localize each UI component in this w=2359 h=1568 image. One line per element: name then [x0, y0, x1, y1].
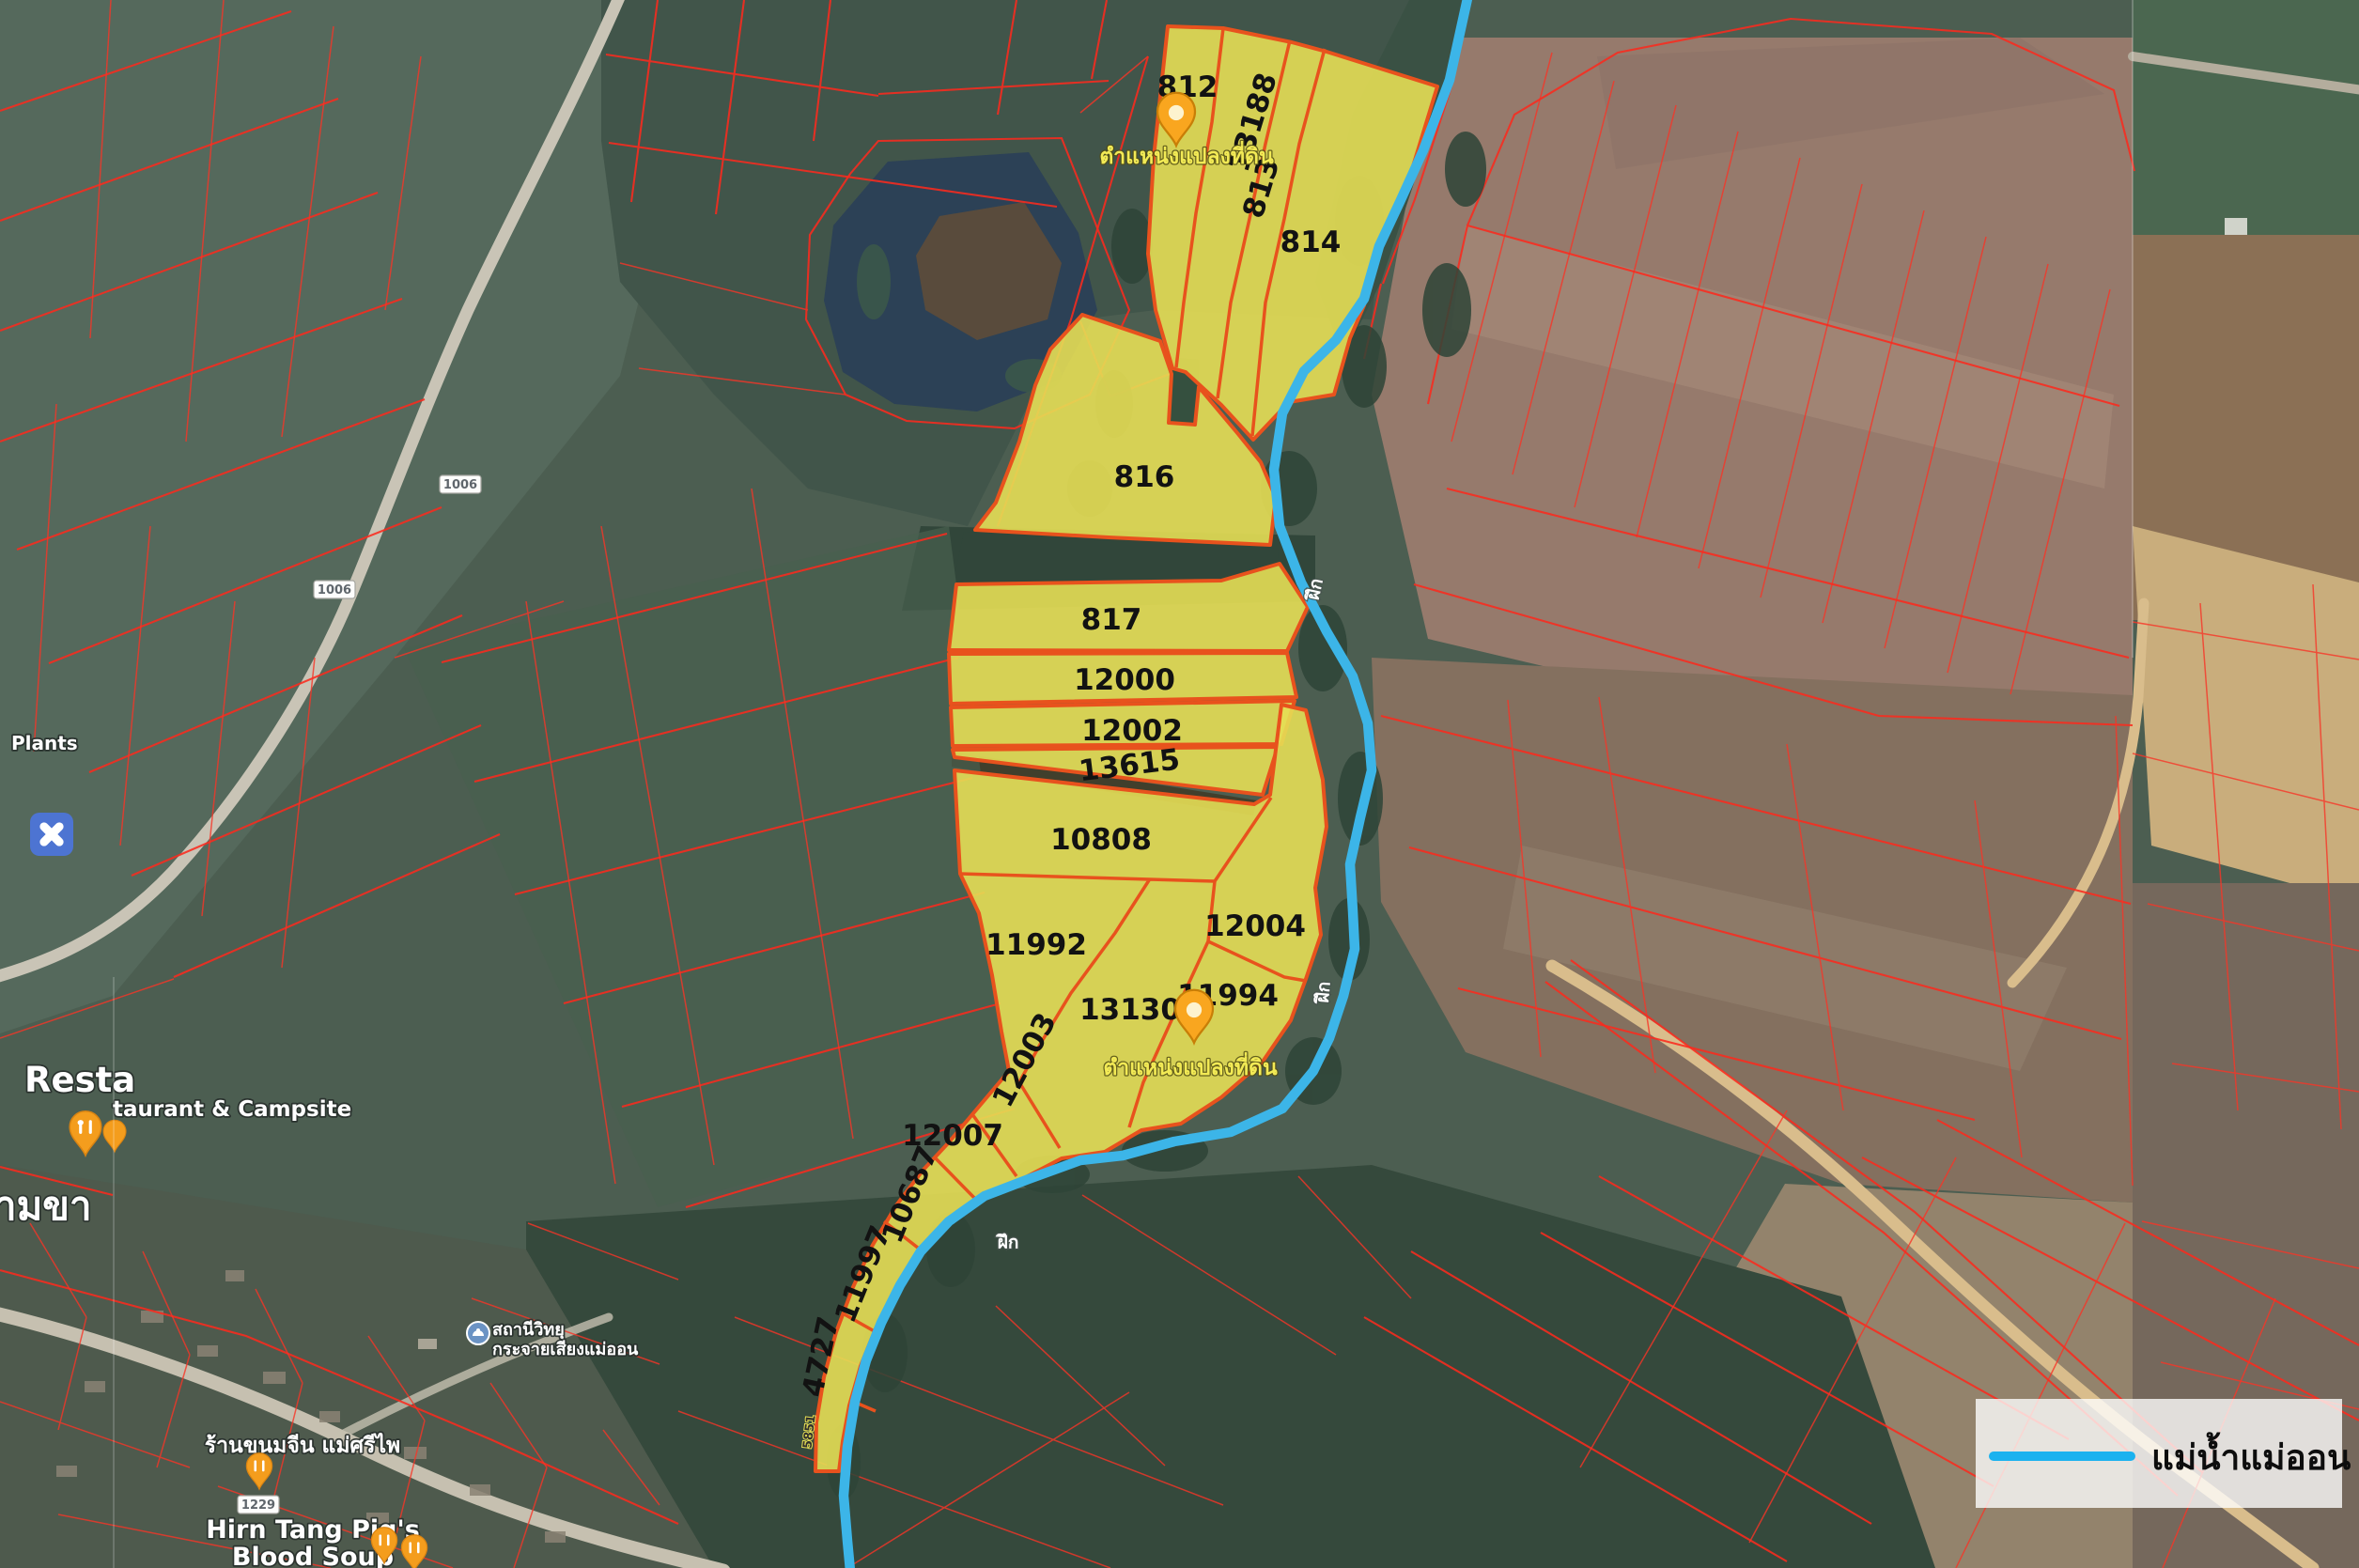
poi-village-samkha-fragment: ามขา — [0, 1183, 92, 1229]
road-badge-1006-b: 1006 — [314, 581, 355, 598]
svg-text:1006: 1006 — [318, 583, 351, 598]
parcel-label-816: 816 — [1114, 460, 1175, 494]
legend-river-name: แม่น้ำแม่ออน — [2151, 1432, 2351, 1478]
river-label-3: ฝึก — [996, 1233, 1019, 1253]
parcel-label-817: 817 — [1081, 603, 1142, 637]
pin-caption-north: ตำแหน่งแปลงที่ดิน — [1099, 140, 1274, 169]
poi-noodle-shop[interactable]: ร้านขนมจีน แม่ศรีไพ — [205, 1432, 400, 1458]
parcel-label-814: 814 — [1280, 225, 1342, 259]
svg-text:1006: 1006 — [443, 478, 477, 492]
poi-radio-line1[interactable]: สถานีวิทยุ — [492, 1320, 565, 1341]
parcel-label-10808: 10808 — [1050, 823, 1152, 857]
poi-plants[interactable]: Plants — [11, 732, 78, 754]
river-label-2: ฝึก — [1312, 981, 1335, 1005]
poi-radio-line2[interactable]: กระจายเสียงแม่ออน — [492, 1340, 639, 1359]
pin-caption-south: ตำแหน่งแปลงที่ดิน — [1103, 1051, 1278, 1080]
legend: แม่น้ำแม่ออน — [1976, 1399, 2351, 1508]
satellite-map-canvas[interactable]: 812 13188 813 814 816 817 12000 12002 13… — [0, 0, 2359, 1568]
parcel-label-12004: 12004 — [1204, 909, 1306, 943]
radio-station-icon[interactable] — [467, 1322, 489, 1344]
parcel-label-13130: 13130 — [1079, 993, 1181, 1027]
poi-restaurant-big-fragment[interactable]: Resta — [24, 1060, 135, 1100]
road-badge-1006-a: 1006 — [440, 475, 481, 493]
svg-text:1229: 1229 — [241, 1498, 275, 1513]
road-badge-1229: 1229 — [238, 1496, 279, 1514]
parcel-label-12002: 12002 — [1081, 714, 1183, 748]
poi-restaurant-campsite[interactable]: taurant & Campsite — [113, 1097, 351, 1122]
poi-pig-soup-line2[interactable]: Blood Soup — [232, 1543, 394, 1568]
parcel-label-11992: 11992 — [986, 928, 1087, 962]
services-icon[interactable] — [30, 813, 73, 856]
parcel-label-12000: 12000 — [1074, 663, 1175, 697]
